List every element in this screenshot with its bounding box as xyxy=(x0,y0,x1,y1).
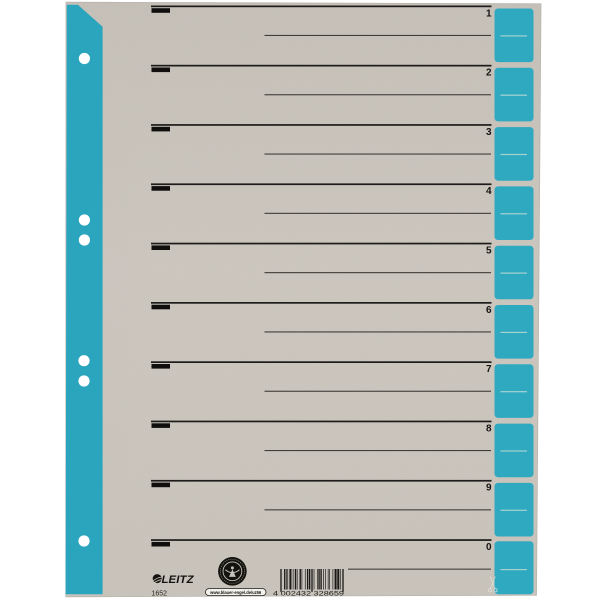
svg-text:1: 1 xyxy=(486,8,492,19)
svg-text:0: 0 xyxy=(486,542,492,553)
svg-text:1652: 1652 xyxy=(152,591,168,598)
svg-text:5: 5 xyxy=(486,246,492,257)
svg-text:8: 8 xyxy=(486,423,492,434)
svg-text:4 002432 328659: 4 002432 328659 xyxy=(273,591,345,598)
svg-text:www.blauer-engel.de/uz56: www.blauer-engel.de/uz56 xyxy=(209,590,262,595)
svg-text:LEITZ: LEITZ xyxy=(162,574,195,586)
svg-text:9: 9 xyxy=(486,483,492,494)
svg-text:4: 4 xyxy=(486,186,492,197)
svg-text:2: 2 xyxy=(486,68,492,79)
svg-text:3: 3 xyxy=(486,127,492,138)
svg-text:7: 7 xyxy=(486,364,492,375)
svg-text:6: 6 xyxy=(486,305,492,316)
